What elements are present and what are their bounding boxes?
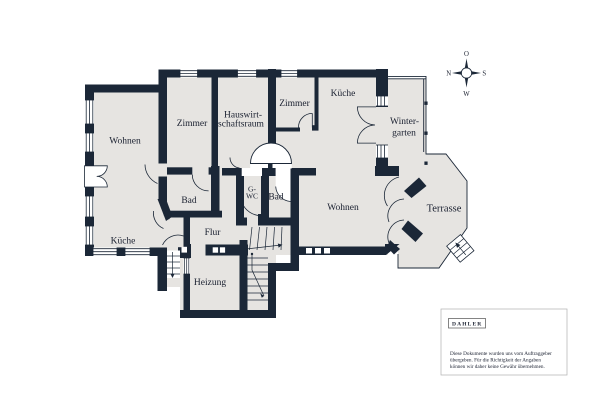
svg-text:WC: WC	[246, 192, 258, 201]
svg-text:Flur: Flur	[205, 228, 222, 238]
svg-text:Heizung: Heizung	[194, 278, 226, 288]
svg-text:Wohnen: Wohnen	[327, 203, 359, 213]
svg-text:Bad: Bad	[268, 193, 284, 203]
svg-text:Zimmer: Zimmer	[177, 119, 208, 129]
svg-text:Küche: Küche	[331, 89, 356, 99]
svg-text:Diese Dokumente wurden uns vom: Diese Dokumente wurden uns vom Auftragge…	[450, 350, 552, 357]
svg-text:übergeben. Für die Richtigkeit: übergeben. Für die Richtigkeit der Angab…	[450, 357, 541, 363]
svg-text:N: N	[446, 70, 451, 77]
svg-text:können wir daher keine Gewähr: können wir daher keine Gewähr übernehmen…	[450, 364, 545, 370]
svg-text:W: W	[463, 91, 470, 98]
svg-text:schaftsraum: schaftsraum	[218, 118, 265, 129]
svg-text:Bad: Bad	[181, 196, 197, 206]
svg-text:Terrasse: Terrasse	[427, 204, 462, 215]
svg-text:DAHLER: DAHLER	[452, 321, 482, 327]
svg-text:Winter-: Winter-	[390, 117, 419, 127]
svg-text:O: O	[464, 51, 469, 58]
svg-text:S: S	[482, 70, 486, 77]
svg-text:Wohnen: Wohnen	[109, 136, 141, 146]
svg-text:Zimmer: Zimmer	[279, 99, 310, 109]
svg-text:garten: garten	[392, 129, 416, 139]
svg-text:Küche: Küche	[111, 237, 136, 247]
